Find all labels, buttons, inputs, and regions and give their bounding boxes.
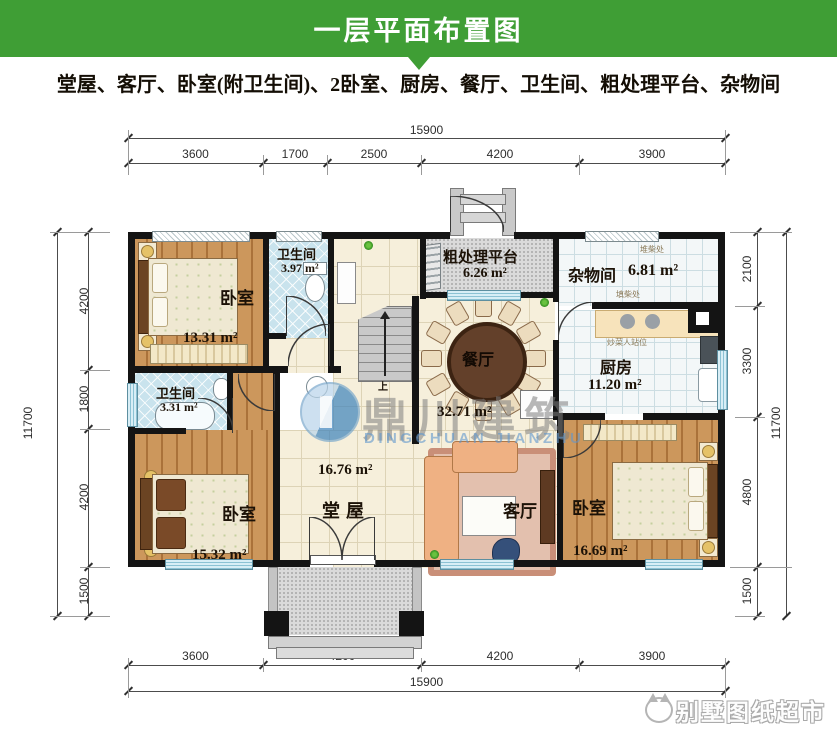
window — [645, 559, 703, 570]
burner — [645, 314, 660, 329]
room-label: 堂屋 — [322, 497, 370, 523]
window — [440, 559, 514, 570]
dim-label: 15900 — [128, 123, 725, 137]
area-label: 3.97 m² — [281, 261, 319, 276]
dim-label: 4200 — [77, 271, 91, 331]
area-label: 16.69 m² — [573, 543, 628, 560]
dim-label: 11700 — [21, 393, 35, 453]
dim-left-total-line — [57, 232, 58, 616]
door-platform — [450, 196, 504, 233]
area-label: 6.26 m² — [463, 266, 507, 282]
dim-label: 15900 — [128, 675, 725, 689]
floor-plan-page: 一层平面布置图 堂屋、客厅、卧室(附卫生间)、2卧室、厨房、餐厅、卫生间、粗处理… — [0, 0, 837, 738]
room-label: 客厅 — [503, 497, 537, 522]
dim-top-total-line — [128, 138, 725, 139]
stair-up-arrow — [384, 318, 386, 376]
door-suite — [238, 374, 275, 411]
dim-label: 3300 — [740, 331, 754, 391]
area-label: 11.20 m² — [588, 377, 642, 394]
dim-right-total-line — [786, 232, 787, 616]
window — [127, 383, 138, 427]
door-bath-left — [198, 398, 233, 433]
note-wood-fill: 填柴处 — [616, 289, 640, 300]
dim-bottom-total-line — [128, 691, 725, 692]
bench — [150, 344, 248, 364]
porch-step — [276, 647, 414, 659]
room-label: 厨房 — [600, 354, 632, 378]
door-storage — [558, 302, 594, 340]
window — [152, 231, 250, 242]
dim-label: 11700 — [769, 393, 783, 453]
window — [276, 231, 322, 242]
window — [447, 290, 521, 301]
dim-label: 2500 — [327, 147, 421, 161]
dining-chair — [525, 350, 546, 367]
dim-label: 4200 — [421, 147, 579, 161]
area-label: 15.32 m² — [192, 547, 247, 564]
cabinet — [337, 262, 356, 304]
dim-label: 3900 — [579, 649, 725, 663]
room-label: 卧室 — [222, 500, 256, 525]
dim-label: 4200 — [421, 649, 579, 663]
main-door-left — [309, 517, 342, 561]
porch-column — [399, 611, 424, 636]
wall — [128, 366, 288, 373]
area-label: 16.76 m² — [318, 462, 373, 479]
corner-brand: 别墅图纸超市 — [676, 693, 826, 727]
watermark-en: DINGCHUAN JIANZHU — [364, 430, 584, 447]
porch-column — [264, 611, 289, 636]
room-label: 卧室 — [572, 494, 606, 519]
area-label: 13.31 m² — [183, 330, 238, 347]
area-label: 32.71 m² — [437, 404, 492, 421]
note-cook-spot: 炒菜人站位 — [607, 337, 647, 348]
dim-label: 3900 — [579, 147, 725, 161]
wall — [420, 232, 426, 299]
dim-right-seg-line — [757, 232, 758, 616]
wall — [553, 239, 559, 302]
room-list-subtitle: 堂屋、客厅、卧室(附卫生间)、2卧室、厨房、餐厅、卫生间、粗处理平台、杂物间 — [0, 68, 837, 97]
door-bath-top — [286, 296, 326, 336]
area-label: 6.81 m² — [628, 262, 678, 280]
window — [585, 231, 659, 242]
wall — [263, 239, 269, 367]
main-door-right — [342, 517, 375, 561]
tv-cabinet — [540, 470, 555, 544]
note-wood-stack: 堆柴处 — [640, 244, 664, 255]
page-title: 一层平面布置图 — [314, 9, 524, 48]
dim-label: 1700 — [263, 147, 327, 161]
entry-porch — [270, 567, 420, 635]
dim-label: 2100 — [740, 239, 754, 299]
area-label: 3.31 m² — [160, 400, 198, 415]
wall — [128, 428, 186, 434]
dim-label: 3600 — [128, 649, 263, 663]
ladder-icon — [424, 243, 441, 291]
title-banner: 一层平面布置图 — [0, 0, 837, 57]
room-label: 粗处理平台 — [443, 246, 518, 267]
dim-label: 3600 — [128, 147, 263, 161]
dim-bottom-seg-line — [128, 665, 725, 666]
dim-label: 4200 — [77, 467, 91, 527]
room-label: 杂物间 — [568, 262, 616, 286]
window — [717, 350, 728, 410]
wall — [643, 413, 725, 420]
burner — [620, 314, 635, 329]
brand-cat-icon — [645, 697, 673, 723]
wall — [420, 292, 447, 298]
dingchuan-logo-icon — [300, 382, 360, 442]
dim-top-seg-line — [128, 163, 725, 164]
dim-label: 1800 — [77, 369, 91, 429]
dining-chair — [421, 350, 442, 367]
room-label: 卧室 — [220, 284, 254, 309]
dim-label: 4800 — [740, 462, 754, 522]
room-label-dining: 餐厅 — [462, 346, 494, 370]
wall — [268, 333, 286, 339]
